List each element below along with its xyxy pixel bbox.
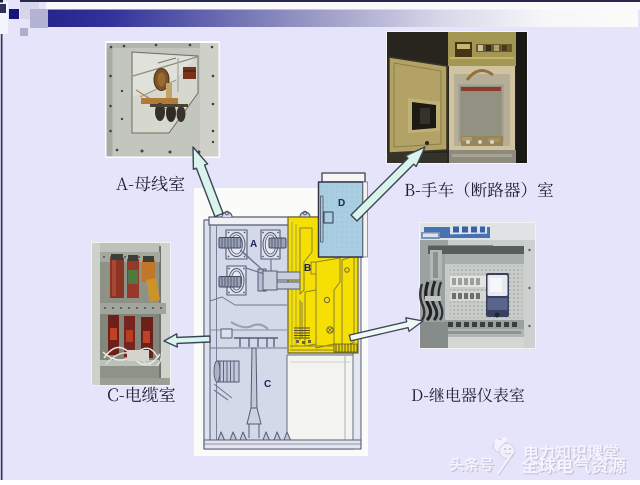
svg-text:A: A xyxy=(250,239,257,250)
svg-text:B: B xyxy=(304,263,311,274)
svg-text:D: D xyxy=(338,198,345,209)
svg-text:C: C xyxy=(264,379,271,390)
